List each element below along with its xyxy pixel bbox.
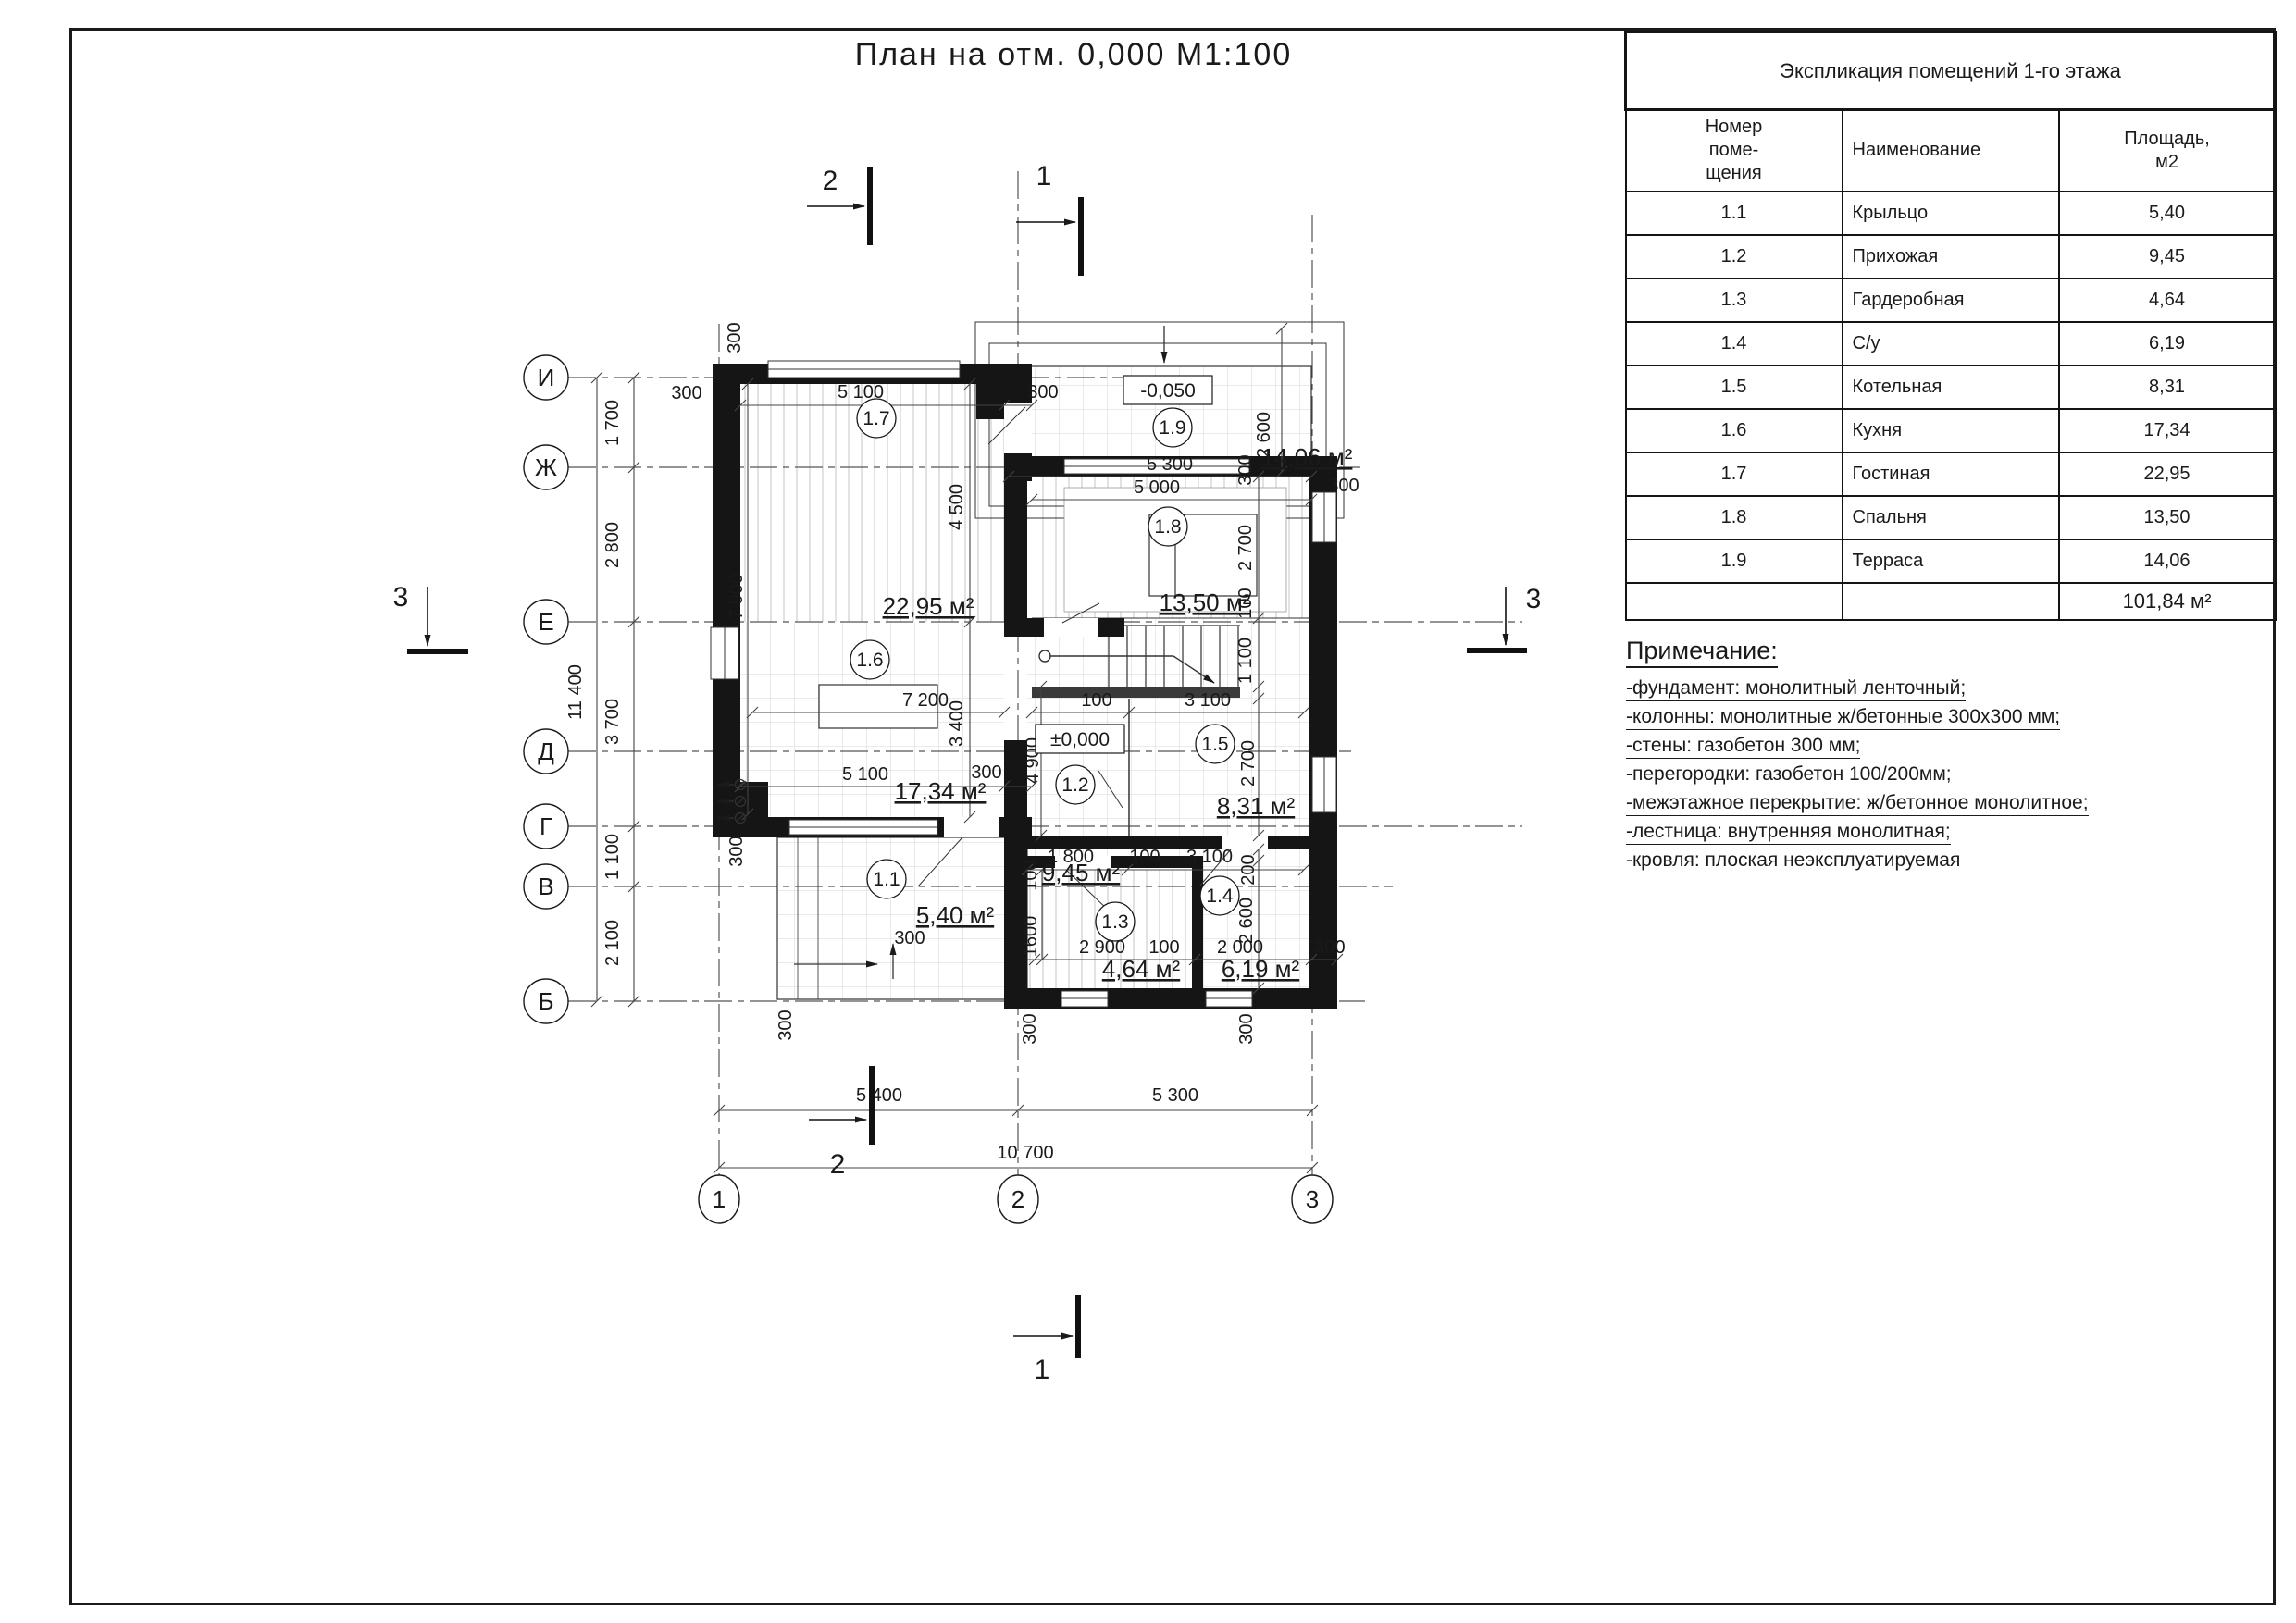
dim-label: 300 [1328,476,1359,496]
svg-text:В: В [538,873,553,900]
note-item: -лестница: внутренняя монолитная; [1626,822,2237,842]
svg-text:-0,050: -0,050 [1140,380,1196,402]
note-item: -колонны: монолитные ж/бетонные 300х300 … [1626,707,2237,727]
dim-label: 4 500 [947,484,967,530]
svg-text:2: 2 [1011,1185,1024,1213]
room-schedule-body: Экспликация помещений 1-го этажа Номер п… [1626,32,2276,620]
room-label-1.2: 1.2 [1056,765,1095,804]
svg-text:Д: Д [538,737,554,765]
dim-label: 5 300 [1152,1085,1198,1106]
svg-text:1.3: 1.3 [1101,911,1128,933]
sheet: План на отм. 0,000 М1:100 [0,0,2296,1623]
room-label-1.4: 1.4 [1200,876,1239,915]
col-header-area: Площадь, м2 [2059,110,2276,192]
table-total-row: 101,84 м² [1626,583,2276,620]
dim-label: 300 [1235,454,1256,485]
note-item: -перегородки: газобетон 100/200мм; [1626,764,2237,785]
note-item: -фундамент: монолитный ленточный; [1626,678,2237,699]
axis-row-Ж: Ж [524,445,568,489]
room-schedule-row: 1.3Гардеробная4,64 [1626,279,2276,322]
svg-text:1: 1 [1035,1355,1050,1385]
level-mark: ±0,000 [1036,725,1124,753]
dim-label: 5 400 [856,1085,902,1106]
note-item: -кровля: плоская неэксплуатируемая [1626,850,2237,871]
axis-row-В: В [524,864,568,909]
area-label: 8,31 м² [1217,792,1296,820]
axis-col-3: 3 [1292,1175,1333,1223]
svg-text:Б: Б [538,987,553,1015]
section-marker-1: 1 [1016,161,1081,276]
dim-label: 100 [1129,847,1160,867]
section-marker-1: 1 [1013,1295,1078,1385]
section-marker-2: 2 [807,166,870,245]
room-label-1.8: 1.8 [1148,507,1187,546]
area-label: 14,06 м² [1261,443,1353,471]
dim-label: 5 300 [1147,454,1193,475]
room-label-1.3: 1.3 [1096,902,1135,941]
notes-block: Примечание: -фундамент: монолитный ленто… [1626,637,2237,879]
table-title: Экспликация помещений 1-го этажа [1626,32,2276,110]
room-schedule-row: 1.5Котельная8,31 [1626,365,2276,409]
svg-text:1.7: 1.7 [863,408,889,429]
room-schedule-row: 1.2Прихожая9,45 [1626,235,2276,279]
room-label-1.6: 1.6 [850,640,889,679]
dim-label: 100 [1081,690,1111,711]
room-schedule-table: Экспликация помещений 1-го этажа Номер п… [1624,31,2277,621]
svg-text:1.5: 1.5 [1201,734,1228,755]
svg-text:2: 2 [823,166,838,196]
svg-text:1.2: 1.2 [1061,774,1088,796]
room-schedule-row: 1.9Терраса14,06 [1626,539,2276,583]
area-label: 13,50 м² [1160,588,1251,616]
axis-row-Д: Д [524,729,568,774]
svg-text:3: 3 [393,582,409,613]
dim-label: 300 [726,836,747,866]
dim-label: 300 [1020,1013,1040,1044]
dim-label: 3 100 [1186,847,1233,867]
svg-text:1: 1 [713,1185,726,1213]
dim-label: 1600 [1021,916,1041,958]
dim-label: 2 100 [602,920,623,966]
area-label: 22,95 м² [883,592,974,620]
dim-label: 11 400 [565,664,586,720]
svg-text:3: 3 [1306,1185,1319,1213]
svg-text:1.8: 1.8 [1154,516,1181,538]
col-header-name: Наименование [1843,110,2059,192]
axis-row-Б: Б [524,979,568,1023]
room-schedule-row: 1.6Кухня17,34 [1626,409,2276,452]
axis-row-Г: Г [524,804,568,849]
svg-text:±0,000: ±0,000 [1050,729,1110,750]
level-mark: -0,050 [1123,376,1212,404]
room-schedule-row: 1.4С/у6,19 [1626,322,2276,365]
svg-text:1.4: 1.4 [1206,886,1234,907]
dim-label: 5 100 [838,382,884,403]
area-label: 17,34 м² [895,777,987,805]
dim-label: 300 [671,383,701,403]
dim-label: 1 100 [602,834,623,880]
dim-label: 300 [1236,1013,1257,1044]
note-item: -межэтажное перекрытие: ж/бетонное монол… [1626,793,2237,813]
dim-label: 2 600 [1236,898,1257,944]
svg-text:И: И [538,364,555,391]
svg-text:Е: Е [538,608,553,636]
dim-label: 1 700 [602,400,623,446]
svg-text:Г: Г [540,812,552,840]
notes-heading: Примечание: [1626,637,1778,665]
area-label: 6,19 м² [1222,955,1300,983]
section-marker-3: 3 [1467,584,1541,650]
dim-label: 3 400 [947,700,967,747]
dim-label: 3 700 [602,699,623,745]
room-label-1.7: 1.7 [857,399,896,438]
area-label: 9,45 м² [1042,859,1121,886]
table-header-row: Номер поме- щения Наименование Площадь, … [1626,110,2276,192]
col-header-number: Номер поме- щения [1626,110,1843,192]
axis-col-2: 2 [998,1175,1038,1223]
svg-text:1.9: 1.9 [1159,417,1185,439]
dim-label: 1 100 [1235,638,1256,684]
room-label-1.9: 1.9 [1153,408,1192,447]
axis-col-1: 1 [699,1175,739,1223]
dim-label: 300 [1314,937,1345,958]
svg-text:1.6: 1.6 [856,650,883,671]
section-marker-3: 3 [393,582,468,651]
dim-label: 3 100 [1185,690,1231,711]
area-label: 4,64 м² [1102,955,1181,983]
room-label-1.1: 1.1 [867,860,906,898]
axis-row-Е: Е [524,600,568,644]
dim-label: 7 900 [726,574,747,620]
svg-text:3: 3 [1526,584,1542,614]
dim-label: 7 200 [902,690,949,711]
dim-label: 300 [776,1010,796,1040]
area-label: 5,40 м² [916,901,995,929]
axis-row-И: И [524,355,568,400]
dim-label: 5 000 [1134,477,1180,498]
dim-label: 300 [1027,382,1058,403]
dim-label: 10 700 [997,1143,1053,1163]
svg-text:Ж: Ж [535,453,557,481]
svg-text:2: 2 [830,1149,846,1180]
dim-label: 2 700 [1238,740,1259,787]
note-item: -стены: газобетон 300 мм; [1626,736,2237,756]
dim-label: 200 [1238,854,1259,885]
svg-text:1.1: 1.1 [873,869,900,890]
room-schedule-row: 1.8Спальня13,50 [1626,496,2276,539]
room-schedule-row: 1.7Гостиная22,95 [1626,452,2276,496]
dim-label: 2 700 [1235,525,1256,571]
section-marker-2: 2 [809,1066,872,1180]
svg-text:1: 1 [1036,161,1052,192]
room-schedule-row: 1.1Крыльцо5,40 [1626,192,2276,235]
total-area: 101,84 м² [2059,583,2276,620]
room-label-1.5: 1.5 [1196,725,1235,763]
dim-label: 2 800 [602,522,623,568]
dim-label: 5 100 [842,764,888,785]
dim-label: 100 [1021,860,1041,890]
dim-label: 300 [725,322,745,353]
dim-label: 300 [894,928,925,948]
